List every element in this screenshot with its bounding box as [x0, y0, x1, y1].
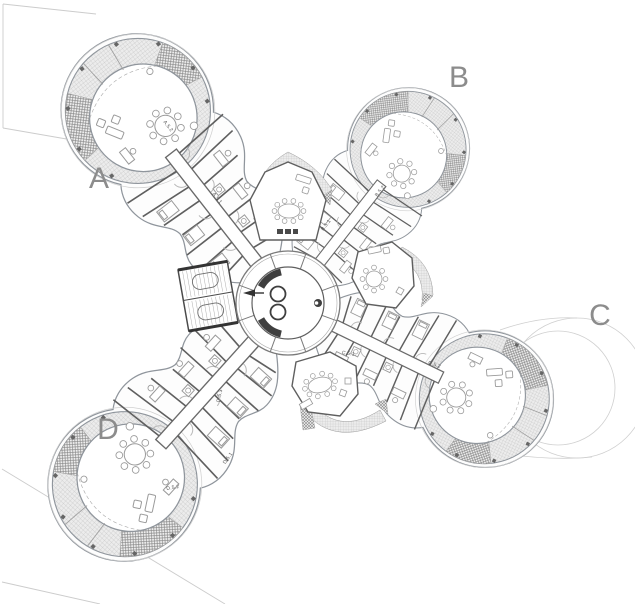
floor-plan-drawing: A B C D A.5.2 A.5.1 B.5.2 B.5.1 C.5.1. C… — [0, 0, 635, 604]
common-room-north — [250, 152, 332, 240]
stair-core — [178, 261, 238, 331]
floor-plan-page: A B C D A.5.2 A.5.1 B.5.2 B.5.1 C.5.1. C… — [0, 0, 635, 604]
wing-label-b: B — [449, 61, 469, 94]
wing-label-a: A — [89, 162, 109, 195]
common-room-east — [352, 242, 433, 308]
wing-label-c: C — [589, 299, 611, 332]
central-core — [236, 251, 340, 355]
wing-label-d: D — [97, 413, 119, 446]
